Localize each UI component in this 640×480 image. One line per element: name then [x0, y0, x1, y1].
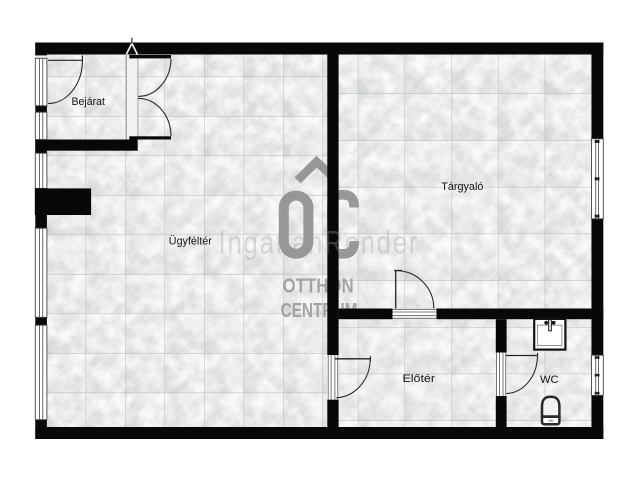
svg-text:OTTHON: OTTHON: [283, 274, 354, 297]
svg-text:WC: WC: [540, 374, 559, 386]
svg-text:Bejárat: Bejárat: [72, 96, 106, 108]
svg-text:Ügyféltér: Ügyféltér: [169, 235, 212, 247]
svg-text:Tárgyaló: Tárgyaló: [441, 181, 483, 193]
svg-text:Előtér: Előtér: [403, 373, 436, 385]
svg-text:IngatlanRender: IngatlanRender: [219, 226, 420, 261]
